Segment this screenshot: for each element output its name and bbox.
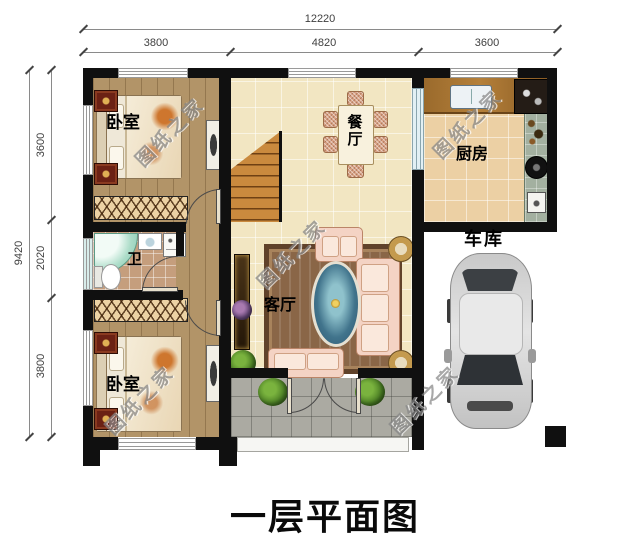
sofa-cushion (361, 324, 389, 352)
label-living: 客厅 (264, 297, 296, 315)
wall-living-bottom-right (358, 368, 412, 378)
dining-chair (323, 111, 338, 128)
wall-bedroom1-bottom (83, 222, 186, 232)
plan-title: 一层平面图 (220, 488, 430, 538)
sliding-door-kitchen (412, 88, 424, 170)
label-garage: 车库 (464, 230, 504, 250)
door-leaf-bathroom (142, 287, 178, 292)
door-leaf-bedroom1 (216, 189, 221, 224)
floor-plan-canvas: 12220 3800 4820 3600 9420 3600 2020 3800 (0, 0, 640, 538)
dim-tick (47, 432, 56, 441)
label-dining: 餐厅 (345, 114, 362, 148)
nightstand (94, 90, 118, 112)
toilet-bowl (101, 264, 121, 290)
car-hood-detail (467, 401, 513, 411)
door-leaf-bedroom2 (216, 300, 221, 336)
dim-left-seg1: 3600 (35, 123, 47, 167)
nightstand (94, 163, 118, 185)
dim-line-top-segments (83, 52, 557, 53)
dining-chair (323, 136, 338, 153)
window-bathroom-left (83, 238, 93, 290)
car-mirror (528, 349, 536, 363)
kitchen-stove (525, 156, 548, 179)
flower-plant (232, 300, 252, 320)
wardrobe-bottom-bedroom (94, 298, 188, 322)
window-kitchen-top (450, 68, 518, 78)
label-bedroom-top: 卧室 (106, 114, 140, 133)
dim-tick (25, 432, 34, 441)
window-bedroom2-bottom (118, 438, 196, 450)
coffee-table-decor (331, 299, 340, 308)
kitchen-corner-appliance (514, 79, 549, 114)
dim-line-top-total (83, 29, 557, 30)
dining-chair (373, 111, 388, 128)
wall-living-bottom-left (219, 368, 288, 378)
entry-door-leaf-right (356, 378, 361, 414)
dim-left-total: 9420 (13, 231, 25, 275)
car-top-view (450, 253, 530, 427)
armchair-cushion (322, 236, 339, 257)
kitchen-spice-shelf (526, 116, 544, 146)
dim-left-seg2: 2020 (35, 236, 47, 280)
sofa-cushion (361, 294, 389, 322)
dim-left-seg3: 3800 (35, 344, 47, 388)
dim-top-seg1: 3800 (131, 37, 181, 49)
sofa-cushion (361, 264, 389, 292)
dining-chair (373, 136, 388, 153)
wall-center-right-upper (412, 78, 424, 88)
car-roof (459, 293, 523, 355)
entry-door-leaf-left (287, 378, 292, 414)
staircase-edge (279, 131, 282, 222)
coffee-table (311, 261, 361, 347)
dim-top-seg2: 4820 (299, 37, 349, 49)
dim-top-total: 12220 (295, 13, 345, 25)
porch-bush (258, 378, 288, 406)
nightstand (94, 332, 118, 354)
wardrobe-top-bedroom (94, 196, 188, 220)
wall-bathroom-right-upper (176, 232, 184, 256)
car-rear-window (461, 269, 519, 291)
window-bedroom1-top (118, 68, 188, 78)
bathroom-sink (138, 233, 162, 250)
label-bathroom: 卫 (127, 252, 142, 269)
loveseat-cushion (307, 353, 339, 370)
dim-tick (553, 24, 562, 33)
wall-right-kitchen (547, 68, 557, 232)
column-garage (545, 426, 566, 447)
dim-line-left-segments (51, 70, 52, 437)
wall-corner-stub-right (219, 437, 237, 466)
car-windshield (457, 355, 523, 385)
dining-chair (347, 91, 364, 106)
porch-step (237, 437, 409, 452)
dim-tick (553, 47, 562, 56)
dim-top-seg3: 3600 (462, 37, 512, 49)
window-dining-top (288, 68, 356, 78)
toilet (94, 264, 120, 288)
kitchen-cabinet (527, 192, 546, 213)
dim-line-left-total (29, 70, 30, 437)
dining-chair (347, 163, 364, 178)
main-sofa (356, 258, 400, 356)
wall-corner-stub-left (83, 437, 100, 466)
window-bedroom1-left (83, 105, 93, 175)
armchair-cushion (340, 236, 357, 257)
side-table (388, 236, 414, 262)
window-bedroom2-left (83, 330, 93, 406)
